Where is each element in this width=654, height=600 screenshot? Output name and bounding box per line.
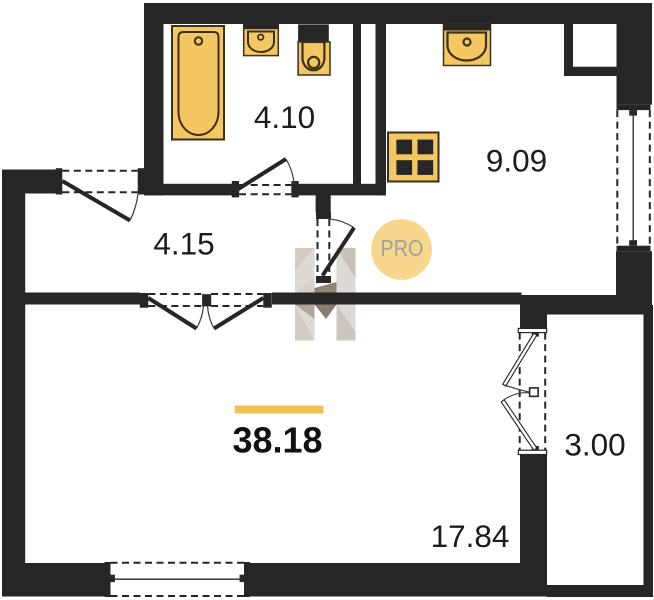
- svg-text:3.00: 3.00: [564, 427, 625, 463]
- svg-text:17.84: 17.84: [431, 518, 510, 554]
- svg-text:4.10: 4.10: [254, 99, 315, 135]
- svg-text:4.15: 4.15: [153, 226, 214, 262]
- svg-text:38.18: 38.18: [232, 420, 322, 461]
- svg-text:9.09: 9.09: [486, 143, 547, 179]
- svg-text:PRO: PRO: [381, 234, 424, 261]
